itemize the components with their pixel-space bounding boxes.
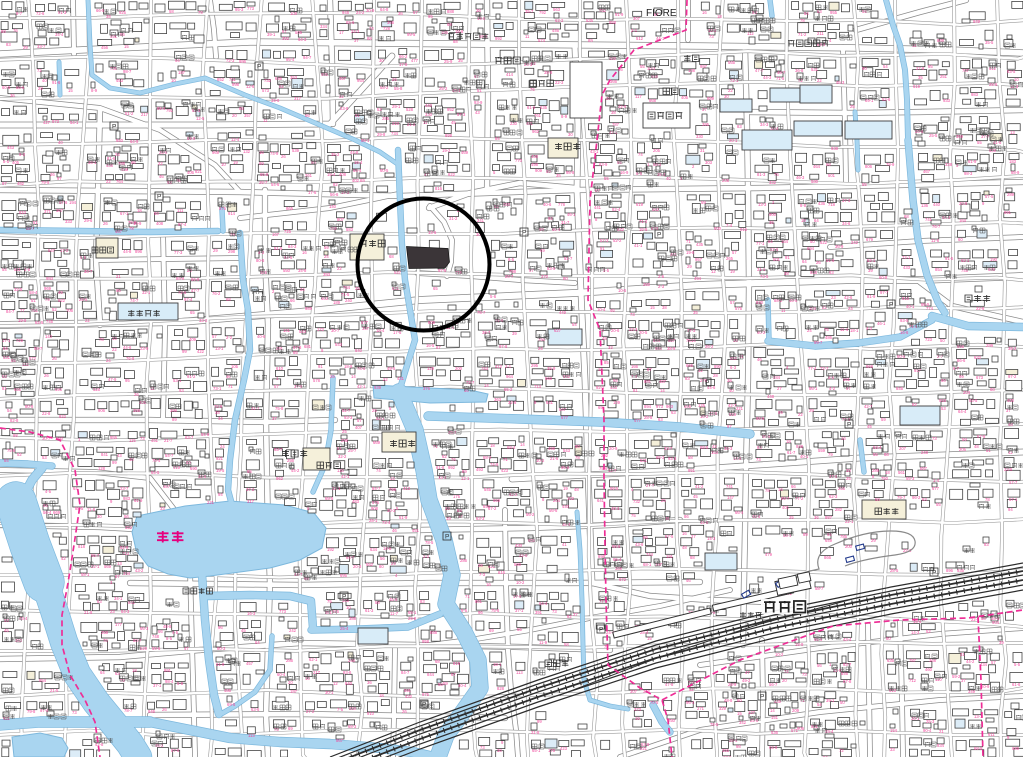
- svg-text:42: 42: [61, 556, 66, 561]
- svg-text:18-9: 18-9: [344, 364, 353, 369]
- svg-text:83: 83: [420, 599, 425, 604]
- svg-text:469: 469: [461, 150, 469, 155]
- svg-text:44-2: 44-2: [966, 659, 975, 664]
- svg-text:209: 209: [792, 708, 800, 713]
- svg-text:46-3: 46-3: [836, 80, 845, 85]
- svg-text:10-2: 10-2: [516, 580, 525, 585]
- svg-text:619: 619: [913, 84, 921, 89]
- svg-text:68: 68: [389, 254, 394, 259]
- svg-text:39-6: 39-6: [271, 98, 280, 103]
- svg-text:200: 200: [455, 366, 463, 371]
- svg-text:24-2: 24-2: [356, 10, 365, 15]
- svg-text:432: 432: [405, 694, 413, 699]
- svg-text:334: 334: [320, 24, 328, 29]
- svg-text:307: 307: [633, 16, 641, 21]
- svg-text:854: 854: [39, 678, 47, 683]
- svg-text:451: 451: [151, 438, 159, 443]
- svg-text:764: 764: [343, 285, 351, 290]
- svg-text:58: 58: [688, 455, 693, 460]
- svg-text:286: 286: [460, 558, 468, 563]
- svg-text:21-7: 21-7: [164, 438, 173, 443]
- svg-text:40-4: 40-4: [458, 683, 467, 688]
- svg-text:47-7: 47-7: [191, 288, 200, 293]
- svg-text:51: 51: [31, 298, 36, 303]
- svg-text:57-1: 57-1: [1009, 497, 1018, 502]
- svg-text:250: 250: [668, 718, 676, 723]
- svg-text:51-9: 51-9: [826, 258, 835, 263]
- svg-text:69-5: 69-5: [325, 496, 334, 501]
- svg-text:68: 68: [904, 214, 909, 219]
- svg-text:79: 79: [828, 452, 833, 457]
- svg-text:62: 62: [442, 454, 447, 459]
- svg-text:634: 634: [370, 547, 378, 552]
- svg-text:916: 916: [740, 227, 748, 232]
- svg-text:357: 357: [339, 76, 347, 81]
- svg-text:20-8: 20-8: [959, 201, 968, 206]
- svg-text:357: 357: [244, 113, 252, 118]
- svg-text:187: 187: [178, 70, 186, 75]
- svg-text:68-2: 68-2: [483, 455, 492, 460]
- svg-text:38: 38: [476, 8, 481, 13]
- svg-text:39-1: 39-1: [267, 32, 276, 37]
- svg-text:37: 37: [573, 612, 578, 617]
- svg-text:408: 408: [156, 221, 164, 226]
- svg-text:91: 91: [318, 364, 323, 369]
- svg-text:38: 38: [662, 305, 667, 310]
- svg-text:50: 50: [840, 700, 845, 705]
- svg-text:22: 22: [798, 412, 803, 417]
- svg-text:11-4: 11-4: [840, 327, 849, 332]
- svg-text:57: 57: [991, 660, 996, 665]
- svg-text:10-2: 10-2: [536, 458, 545, 463]
- svg-text:67: 67: [451, 672, 456, 677]
- svg-text:88: 88: [367, 36, 372, 41]
- svg-text:69: 69: [288, 726, 293, 731]
- svg-text:342: 342: [739, 720, 747, 725]
- svg-text:20-6: 20-6: [915, 129, 924, 134]
- svg-text:14: 14: [520, 442, 525, 447]
- svg-text:63-5: 63-5: [1007, 69, 1016, 74]
- svg-text:90: 90: [941, 378, 946, 383]
- svg-text:58: 58: [169, 9, 174, 14]
- svg-text:61-9: 61-9: [216, 662, 225, 667]
- svg-text:P: P: [932, 570, 936, 577]
- svg-text:19-5: 19-5: [216, 468, 225, 473]
- svg-text:55: 55: [936, 502, 941, 507]
- svg-text:62-3: 62-3: [829, 494, 838, 499]
- svg-text:12-6: 12-6: [246, 84, 255, 89]
- svg-text:80: 80: [563, 276, 568, 281]
- svg-text:73: 73: [552, 609, 557, 614]
- svg-text:71: 71: [465, 594, 470, 599]
- svg-text:65-3: 65-3: [656, 455, 665, 460]
- svg-text:98-7: 98-7: [123, 69, 132, 74]
- svg-text:412: 412: [495, 364, 503, 369]
- svg-text:37-1: 37-1: [515, 608, 524, 613]
- svg-text:48: 48: [574, 487, 579, 492]
- svg-text:840: 840: [355, 348, 363, 353]
- svg-text:819: 819: [453, 661, 461, 666]
- svg-text:74-9: 74-9: [490, 462, 499, 467]
- svg-text:26-7: 26-7: [259, 180, 268, 185]
- svg-text:20-3: 20-3: [353, 564, 362, 569]
- svg-text:22: 22: [337, 266, 342, 271]
- svg-text:89-4: 89-4: [157, 106, 166, 111]
- svg-text:498: 498: [531, 162, 539, 167]
- svg-text:935: 935: [957, 568, 965, 573]
- svg-text:423: 423: [560, 746, 568, 751]
- svg-text:108: 108: [688, 68, 696, 73]
- svg-text:56-4: 56-4: [653, 162, 662, 167]
- svg-text:84-7: 84-7: [401, 670, 410, 675]
- svg-text:16: 16: [302, 250, 307, 255]
- svg-text:91-2: 91-2: [187, 374, 196, 379]
- svg-text:26: 26: [402, 709, 407, 714]
- svg-text:86-5: 86-5: [921, 302, 930, 307]
- svg-text:69: 69: [598, 405, 603, 410]
- svg-text:574: 574: [538, 38, 546, 43]
- svg-text:23-8: 23-8: [340, 106, 349, 111]
- svg-text:86-6: 86-6: [957, 358, 966, 363]
- svg-text:641: 641: [546, 400, 554, 405]
- svg-text:80-3: 80-3: [217, 646, 226, 651]
- svg-text:64: 64: [100, 670, 105, 675]
- svg-text:45: 45: [4, 628, 9, 633]
- svg-text:77-3: 77-3: [174, 250, 183, 255]
- svg-text:666: 666: [686, 363, 694, 368]
- svg-text:84: 84: [4, 458, 9, 463]
- svg-text:42-1: 42-1: [357, 384, 366, 389]
- svg-text:996: 996: [239, 59, 247, 64]
- svg-text:63: 63: [658, 417, 663, 422]
- svg-text:946: 946: [148, 709, 156, 714]
- svg-text:44-2: 44-2: [291, 468, 300, 473]
- svg-text:62-1: 62-1: [961, 258, 970, 263]
- svg-text:32-6: 32-6: [508, 400, 517, 405]
- svg-text:282: 282: [835, 507, 843, 512]
- svg-text:14: 14: [660, 388, 665, 393]
- svg-text:422: 422: [197, 349, 205, 354]
- svg-text:208: 208: [722, 178, 730, 183]
- svg-text:13-6: 13-6: [428, 230, 437, 235]
- svg-text:26: 26: [281, 154, 286, 159]
- svg-text:642: 642: [617, 227, 625, 232]
- svg-text:82-2: 82-2: [509, 492, 518, 497]
- svg-text:59: 59: [962, 437, 967, 442]
- svg-text:741: 741: [726, 484, 734, 489]
- svg-text:19: 19: [563, 486, 568, 491]
- svg-text:109: 109: [613, 400, 621, 405]
- svg-text:22-6: 22-6: [519, 553, 528, 558]
- svg-text:71: 71: [686, 239, 691, 244]
- svg-text:15: 15: [124, 44, 129, 49]
- svg-text:25: 25: [789, 515, 794, 520]
- svg-text:45-9: 45-9: [389, 597, 398, 602]
- svg-text:16-6: 16-6: [900, 330, 909, 335]
- svg-text:217: 217: [141, 112, 149, 117]
- svg-text:23-3: 23-3: [629, 327, 638, 332]
- svg-text:31-8: 31-8: [531, 730, 540, 735]
- svg-text:97-8: 97-8: [499, 344, 508, 349]
- svg-text:35: 35: [693, 310, 698, 315]
- svg-text:65-1: 65-1: [408, 610, 417, 615]
- svg-text:969: 969: [212, 150, 220, 155]
- svg-text:22: 22: [85, 318, 90, 323]
- svg-text:559: 559: [818, 448, 826, 453]
- svg-text:888: 888: [447, 9, 455, 14]
- svg-text:992: 992: [448, 465, 456, 470]
- svg-text:27-2: 27-2: [306, 709, 315, 714]
- svg-text:56: 56: [380, 556, 385, 561]
- svg-text:27: 27: [777, 386, 782, 391]
- svg-text:62: 62: [912, 402, 917, 407]
- svg-text:49-5: 49-5: [387, 366, 396, 371]
- svg-text:11: 11: [423, 120, 428, 125]
- svg-text:940: 940: [116, 138, 124, 143]
- svg-text:143: 143: [45, 334, 53, 339]
- svg-text:76: 76: [774, 172, 779, 177]
- svg-text:963: 963: [666, 404, 674, 409]
- svg-text:71: 71: [228, 384, 233, 389]
- svg-text:34-8: 34-8: [298, 268, 307, 273]
- svg-text:52-1: 52-1: [376, 416, 385, 421]
- svg-text:63-8: 63-8: [769, 745, 778, 750]
- svg-text:81: 81: [633, 388, 638, 393]
- svg-text:669: 669: [373, 440, 381, 445]
- svg-text:93-3: 93-3: [668, 456, 677, 461]
- svg-text:41: 41: [562, 542, 567, 547]
- svg-text:82: 82: [567, 614, 572, 619]
- svg-text:852: 852: [217, 77, 225, 82]
- svg-text:58-7: 58-7: [815, 586, 824, 591]
- svg-text:10: 10: [346, 605, 351, 610]
- svg-text:56: 56: [817, 663, 822, 668]
- svg-text:67-1: 67-1: [120, 211, 129, 216]
- svg-text:66-3: 66-3: [140, 626, 149, 631]
- svg-text:58: 58: [375, 600, 380, 605]
- svg-text:16-8: 16-8: [639, 227, 648, 232]
- svg-text:60-5: 60-5: [380, 168, 389, 173]
- svg-text:16-9: 16-9: [620, 170, 629, 175]
- svg-text:14: 14: [691, 338, 696, 343]
- svg-text:431: 431: [397, 376, 405, 381]
- svg-text:31-7: 31-7: [561, 220, 570, 225]
- svg-text:694: 694: [807, 246, 815, 251]
- svg-text:29: 29: [23, 45, 28, 50]
- svg-text:101: 101: [283, 328, 291, 333]
- svg-text:695: 695: [340, 573, 348, 578]
- svg-text:82-2: 82-2: [192, 108, 201, 113]
- svg-text:22: 22: [158, 161, 163, 166]
- svg-text:938: 938: [831, 146, 839, 151]
- svg-text:11-8: 11-8: [87, 507, 96, 512]
- svg-text:627: 627: [554, 328, 562, 333]
- svg-text:65-8: 65-8: [260, 172, 269, 177]
- svg-text:88: 88: [453, 39, 458, 44]
- svg-text:79-8: 79-8: [27, 709, 36, 714]
- svg-text:29-6: 29-6: [84, 218, 93, 223]
- svg-text:89: 89: [462, 469, 467, 474]
- svg-text:48: 48: [974, 444, 979, 449]
- svg-text:44-8: 44-8: [123, 249, 132, 254]
- svg-text:73: 73: [140, 436, 145, 441]
- svg-text:36: 36: [769, 220, 774, 225]
- svg-text:547: 547: [559, 407, 567, 412]
- svg-text:22-3: 22-3: [555, 80, 564, 85]
- svg-text:338: 338: [945, 162, 953, 167]
- svg-text:205: 205: [653, 148, 661, 153]
- svg-text:99: 99: [259, 161, 264, 166]
- svg-text:583: 583: [346, 227, 354, 232]
- svg-text:43-1: 43-1: [590, 149, 599, 154]
- svg-text:30-9: 30-9: [366, 8, 375, 13]
- svg-text:54: 54: [883, 64, 888, 69]
- svg-text:63-2: 63-2: [555, 18, 564, 23]
- svg-text:590: 590: [514, 562, 522, 567]
- svg-text:37: 37: [961, 678, 966, 683]
- svg-text:248: 248: [921, 450, 929, 455]
- svg-text:31: 31: [700, 148, 705, 153]
- svg-text:52: 52: [52, 307, 57, 312]
- svg-text:441: 441: [594, 205, 602, 210]
- svg-text:4-2: 4-2: [866, 326, 873, 331]
- svg-text:105: 105: [231, 364, 239, 369]
- svg-text:241: 241: [477, 218, 485, 223]
- svg-text:419: 419: [173, 465, 181, 470]
- svg-text:968: 968: [866, 364, 874, 369]
- svg-text:24: 24: [115, 152, 120, 157]
- svg-text:25-2: 25-2: [439, 86, 448, 91]
- svg-text:816: 816: [435, 186, 443, 191]
- svg-text:55: 55: [873, 452, 878, 457]
- svg-text:78: 78: [765, 488, 770, 493]
- svg-text:40: 40: [666, 176, 671, 181]
- svg-text:376: 376: [423, 386, 431, 391]
- svg-text:92-1: 92-1: [596, 385, 605, 390]
- svg-text:894: 894: [644, 404, 652, 409]
- svg-text:332: 332: [769, 180, 777, 185]
- svg-text:242: 242: [289, 628, 297, 633]
- svg-text:406: 406: [187, 170, 195, 175]
- svg-text:63-6: 63-6: [251, 707, 260, 712]
- svg-text:951: 951: [688, 468, 696, 473]
- svg-text:43-6: 43-6: [635, 542, 644, 547]
- svg-text:14: 14: [770, 708, 775, 713]
- svg-text:99-7: 99-7: [814, 340, 823, 345]
- svg-text:35: 35: [458, 58, 463, 63]
- svg-text:8-5: 8-5: [166, 636, 173, 641]
- svg-text:38-2: 38-2: [1008, 346, 1017, 351]
- svg-text:217: 217: [313, 670, 321, 675]
- svg-text:55: 55: [977, 140, 982, 145]
- svg-text:33: 33: [608, 345, 613, 350]
- svg-text:55-3: 55-3: [906, 476, 915, 481]
- svg-text:22: 22: [106, 179, 111, 184]
- svg-text:938: 938: [796, 444, 804, 449]
- svg-text:53-9: 53-9: [641, 742, 650, 747]
- svg-text:211: 211: [817, 31, 824, 36]
- svg-text:752: 752: [599, 8, 607, 13]
- svg-text:566: 566: [260, 270, 268, 275]
- svg-text:646: 646: [275, 76, 283, 81]
- svg-text:84-3: 84-3: [121, 609, 130, 614]
- svg-text:529: 529: [140, 646, 148, 651]
- svg-text:78: 78: [985, 497, 990, 502]
- svg-text:61-6: 61-6: [527, 105, 536, 110]
- svg-text:28-5: 28-5: [890, 568, 899, 573]
- svg-text:40-6: 40-6: [257, 334, 266, 339]
- svg-text:5-8: 5-8: [177, 681, 184, 686]
- svg-text:10-4: 10-4: [597, 307, 606, 312]
- svg-text:41-1: 41-1: [634, 243, 643, 248]
- svg-text:102: 102: [567, 496, 575, 501]
- svg-text:95-3: 95-3: [235, 7, 244, 12]
- svg-text:7-3: 7-3: [479, 572, 486, 577]
- svg-text:29: 29: [871, 538, 876, 543]
- svg-text:773: 773: [247, 6, 255, 11]
- svg-text:20-9: 20-9: [981, 684, 990, 689]
- svg-text:61-3: 61-3: [365, 608, 374, 613]
- svg-text:295: 295: [531, 363, 539, 368]
- svg-text:76-8: 76-8: [126, 356, 135, 361]
- svg-text:64-4: 64-4: [353, 168, 362, 173]
- svg-text:59-6: 59-6: [152, 646, 161, 651]
- svg-text:770: 770: [515, 158, 523, 163]
- svg-text:97-7: 97-7: [880, 290, 889, 295]
- svg-text:438: 438: [531, 154, 539, 159]
- svg-text:49: 49: [58, 290, 63, 295]
- svg-text:401: 401: [782, 505, 790, 510]
- svg-text:88: 88: [1, 29, 6, 34]
- svg-text:19-2: 19-2: [442, 148, 451, 153]
- svg-text:32-3: 32-3: [724, 446, 733, 451]
- svg-text:33: 33: [890, 747, 895, 752]
- svg-text:38: 38: [727, 378, 732, 383]
- svg-text:72-3: 72-3: [226, 58, 235, 63]
- svg-text:856: 856: [957, 344, 965, 349]
- svg-text:73: 73: [480, 745, 485, 750]
- svg-text:333: 333: [65, 219, 73, 224]
- svg-text:72-7: 72-7: [820, 366, 829, 371]
- svg-text:97-6: 97-6: [438, 268, 447, 273]
- svg-text:251: 251: [940, 74, 948, 79]
- svg-text:23-7: 23-7: [120, 486, 129, 491]
- svg-text:673: 673: [976, 375, 984, 380]
- svg-text:79: 79: [45, 297, 50, 302]
- svg-text:17: 17: [339, 30, 344, 35]
- svg-text:78-9: 78-9: [886, 162, 895, 167]
- svg-text:706: 706: [66, 308, 74, 313]
- svg-text:72: 72: [37, 68, 42, 73]
- svg-text:51-7: 51-7: [564, 256, 573, 261]
- svg-text:84-7: 84-7: [6, 309, 15, 314]
- svg-text:43-4: 43-4: [843, 637, 852, 642]
- svg-text:81: 81: [2, 386, 7, 391]
- svg-text:81-9: 81-9: [867, 294, 876, 299]
- svg-text:258: 258: [101, 630, 109, 635]
- svg-text:191: 191: [666, 554, 674, 559]
- svg-text:70-4: 70-4: [152, 458, 161, 463]
- svg-text:352: 352: [125, 525, 133, 530]
- svg-text:73-4: 73-4: [382, 520, 391, 525]
- svg-text:744: 744: [646, 552, 654, 557]
- svg-text:494: 494: [694, 276, 702, 281]
- svg-text:20-9: 20-9: [609, 446, 618, 451]
- svg-text:16: 16: [702, 10, 707, 15]
- svg-text:33: 33: [846, 468, 851, 473]
- svg-text:16-3: 16-3: [247, 611, 256, 616]
- svg-text:349: 349: [968, 689, 976, 694]
